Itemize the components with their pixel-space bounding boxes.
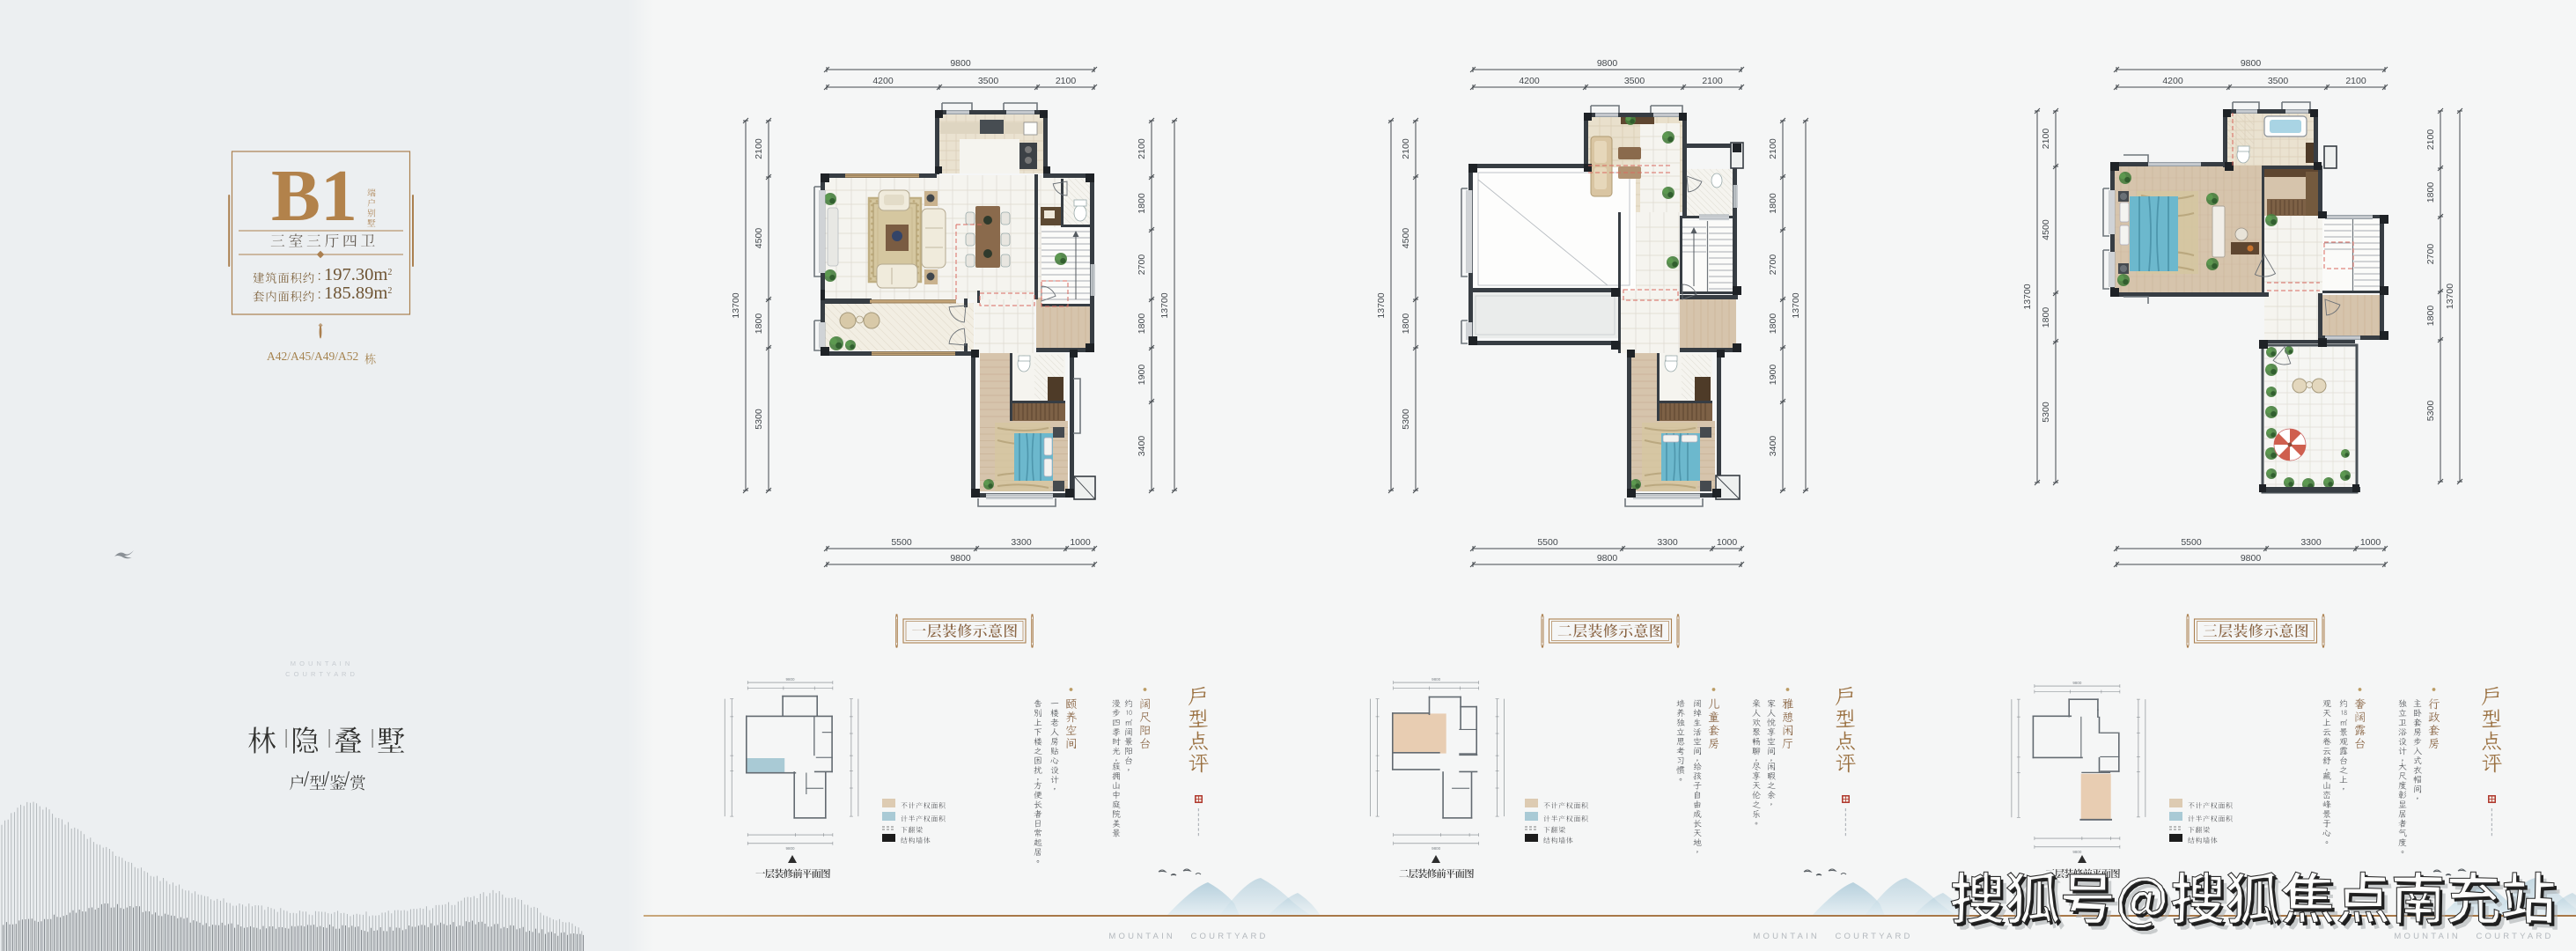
svg-text:185.89m2: 185.89m2 — [324, 284, 392, 303]
svg-text:13700: 13700 — [2022, 284, 2033, 309]
svg-text:13700: 13700 — [731, 292, 741, 318]
svg-text:3500: 3500 — [978, 76, 999, 86]
svg-text:1800: 1800 — [2425, 182, 2436, 203]
svg-text:4500: 4500 — [2041, 219, 2051, 240]
svg-text:9800: 9800 — [1597, 553, 1618, 564]
svg-text:9800: 9800 — [2241, 553, 2262, 564]
svg-text:2700: 2700 — [2425, 244, 2436, 265]
svg-text:9800: 9800 — [950, 58, 971, 69]
svg-text:9800: 9800 — [1432, 846, 1441, 851]
svg-text:2100: 2100 — [2345, 76, 2366, 86]
svg-text:9800: 9800 — [950, 553, 971, 564]
svg-text:MOUNTAIN COURTYARD: MOUNTAIN COURTYARD — [1753, 932, 1912, 941]
svg-text:1000: 1000 — [2360, 537, 2381, 548]
svg-text:2100: 2100 — [754, 138, 764, 159]
svg-text:4200: 4200 — [1519, 76, 1540, 86]
svg-text:1800: 1800 — [2425, 306, 2436, 327]
svg-text:MOUNTAIN COURTYARD: MOUNTAIN COURTYARD — [2394, 932, 2553, 941]
svg-text:13700: 13700 — [1376, 292, 1387, 318]
svg-text:5500: 5500 — [1537, 537, 1558, 548]
svg-text:5500: 5500 — [891, 537, 912, 548]
svg-text:1800: 1800 — [1768, 313, 1778, 335]
svg-text:13700: 13700 — [2445, 284, 2455, 309]
svg-text:2700: 2700 — [1137, 254, 1147, 276]
svg-text:MOUNTAIN COURTYARD: MOUNTAIN COURTYARD — [1108, 932, 1268, 941]
svg-text:9800: 9800 — [785, 846, 795, 851]
svg-text:C O U R T Y A R D: C O U R T Y A R D — [285, 670, 356, 678]
svg-text:5300: 5300 — [754, 409, 764, 430]
svg-text:2100: 2100 — [1056, 76, 1077, 86]
svg-text:2100: 2100 — [1768, 138, 1778, 159]
svg-text:4500: 4500 — [754, 228, 764, 249]
svg-text:5300: 5300 — [2041, 402, 2051, 423]
svg-text:13700: 13700 — [1159, 292, 1170, 318]
svg-text:1800: 1800 — [1401, 313, 1411, 335]
svg-text:2100: 2100 — [1137, 138, 1147, 159]
svg-text:B1: B1 — [271, 155, 357, 237]
svg-text:2100: 2100 — [2425, 129, 2436, 151]
svg-text:9800: 9800 — [785, 677, 795, 682]
svg-text:1900: 1900 — [1137, 365, 1147, 386]
svg-text:3400: 3400 — [1768, 436, 1778, 457]
svg-text:9800: 9800 — [2241, 58, 2262, 69]
svg-text:5300: 5300 — [2425, 401, 2436, 422]
svg-text:5500: 5500 — [2181, 537, 2202, 548]
svg-text:1800: 1800 — [1137, 313, 1147, 335]
svg-text:197.30m2: 197.30m2 — [324, 265, 392, 284]
svg-text:2700: 2700 — [1768, 254, 1778, 276]
svg-text:9800: 9800 — [2072, 850, 2082, 854]
svg-text:3500: 3500 — [1624, 76, 1645, 86]
svg-text:1000: 1000 — [1717, 537, 1738, 548]
svg-text:1900: 1900 — [1768, 365, 1778, 386]
svg-text:3300: 3300 — [1011, 537, 1032, 548]
svg-text:1800: 1800 — [754, 313, 764, 335]
svg-text:4500: 4500 — [1401, 228, 1411, 249]
svg-text:3400: 3400 — [1137, 436, 1147, 457]
svg-text:5300: 5300 — [1401, 409, 1411, 430]
svg-text:1800: 1800 — [1137, 193, 1147, 214]
svg-text:2100: 2100 — [1702, 76, 1723, 86]
svg-text:A42/A45/A49/A52: A42/A45/A49/A52 — [267, 350, 358, 363]
svg-text:1800: 1800 — [2041, 307, 2051, 328]
svg-text:2100: 2100 — [2041, 129, 2051, 150]
svg-text:1800: 1800 — [1768, 193, 1778, 214]
svg-text:2100: 2100 — [1401, 138, 1411, 159]
svg-text:3300: 3300 — [1657, 537, 1678, 548]
svg-text:9800: 9800 — [1432, 677, 1441, 682]
svg-text:9800: 9800 — [2072, 681, 2082, 685]
svg-text:9800: 9800 — [1597, 58, 1618, 69]
svg-text:3300: 3300 — [2300, 537, 2322, 548]
svg-text:4200: 4200 — [872, 76, 894, 86]
svg-text:M O U N T A I N: M O U N T A I N — [291, 660, 351, 667]
svg-text:13700: 13700 — [1791, 292, 1801, 318]
svg-text:3500: 3500 — [2268, 76, 2289, 86]
svg-text:4200: 4200 — [2162, 76, 2183, 86]
svg-text:1000: 1000 — [1070, 537, 1091, 548]
